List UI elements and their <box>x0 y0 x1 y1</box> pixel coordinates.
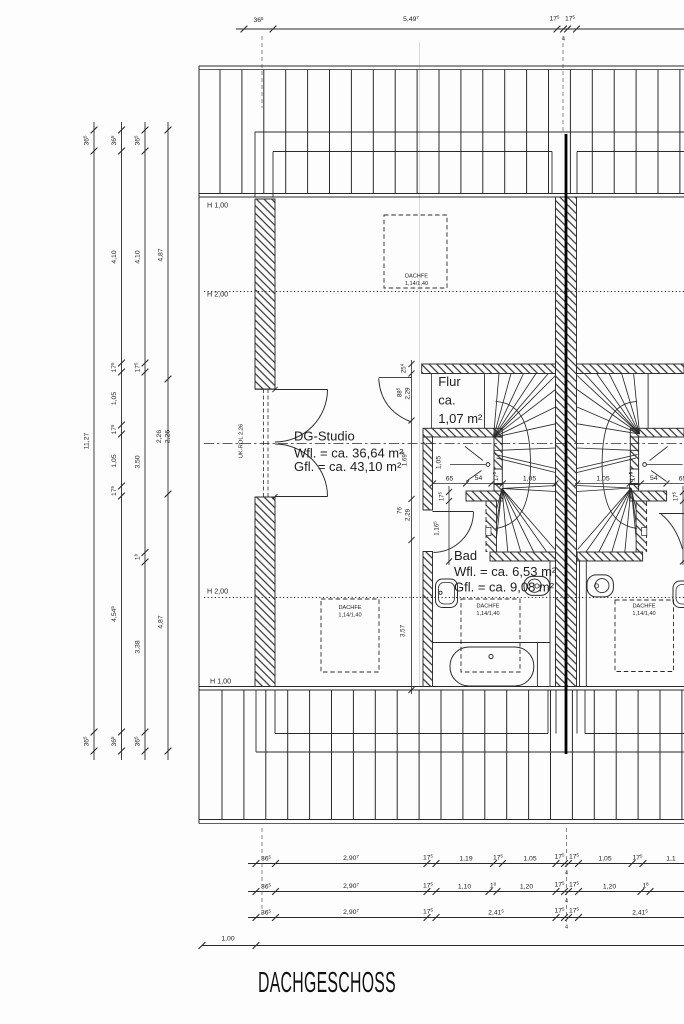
svg-text:1,14/1,40: 1,14/1,40 <box>405 281 428 287</box>
svg-text:H 2,00: H 2,00 <box>207 290 228 299</box>
svg-text:4,87: 4,87 <box>158 248 165 261</box>
svg-text:3,57: 3,57 <box>400 624 407 637</box>
svg-text:UK-ROL 2,26: UK-ROL 2,26 <box>239 424 245 459</box>
svg-text:4: 4 <box>565 925 568 931</box>
svg-text:4,10: 4,10 <box>111 250 118 263</box>
svg-text:Bad: Bad <box>454 548 477 563</box>
svg-text:DACHFE: DACHFE <box>633 604 656 610</box>
svg-text:H 2,00: H 2,00 <box>207 587 228 596</box>
svg-text:1,00: 1,00 <box>221 936 234 943</box>
svg-text:1,05: 1,05 <box>523 856 536 863</box>
svg-text:1,05: 1,05 <box>598 856 611 863</box>
svg-text:DACHFE: DACHFE <box>405 274 428 280</box>
svg-text:1,1: 1,1 <box>666 856 676 863</box>
svg-text:76: 76 <box>397 507 404 514</box>
svg-text:2,29: 2,29 <box>405 508 412 521</box>
svg-text:1,14/1,40: 1,14/1,40 <box>632 611 655 617</box>
svg-text:1,07 m²: 1,07 m² <box>438 411 483 426</box>
svg-text:4,87: 4,87 <box>158 615 165 628</box>
svg-text:4: 4 <box>562 37 565 43</box>
svg-text:Gfl. = ca. 43,10 m²: Gfl. = ca. 43,10 m² <box>294 459 402 474</box>
svg-text:H 1,00: H 1,00 <box>210 677 231 686</box>
svg-text:11,27: 11,27 <box>84 433 91 450</box>
svg-text:1,20: 1,20 <box>520 884 533 891</box>
svg-text:1,14/1,40: 1,14/1,40 <box>338 613 361 619</box>
svg-text:DACHFE: DACHFE <box>339 605 362 611</box>
svg-text:2,26: 2,26 <box>156 430 163 443</box>
svg-text:1,05: 1,05 <box>436 456 443 469</box>
svg-text:1,05: 1,05 <box>111 454 118 467</box>
svg-text:2,29: 2,29 <box>405 387 412 400</box>
svg-text:1,19: 1,19 <box>459 856 472 863</box>
svg-text:Flur: Flur <box>438 374 461 389</box>
svg-text:DG-Studio: DG-Studio <box>294 429 355 444</box>
svg-text:65: 65 <box>679 476 684 483</box>
svg-text:H 1,00: H 1,00 <box>207 201 228 210</box>
svg-text:3,50: 3,50 <box>135 455 142 468</box>
svg-text:1,05: 1,05 <box>111 392 118 405</box>
svg-text:1,10: 1,10 <box>458 884 471 891</box>
svg-text:54: 54 <box>475 475 483 482</box>
svg-text:4,10: 4,10 <box>135 250 142 263</box>
svg-text:1,14/1,40: 1,14/1,40 <box>476 611 499 617</box>
svg-text:3,38: 3,38 <box>135 640 142 653</box>
svg-text:65: 65 <box>446 476 454 483</box>
svg-text:DACHFE: DACHFE <box>477 604 500 610</box>
svg-text:DACHGESCHOSS: DACHGESCHOSS <box>258 966 396 998</box>
svg-text:1,20: 1,20 <box>603 884 616 891</box>
svg-text:ca.: ca. <box>438 393 455 408</box>
svg-text:54: 54 <box>650 475 658 482</box>
svg-text:2,26: 2,26 <box>165 430 172 443</box>
